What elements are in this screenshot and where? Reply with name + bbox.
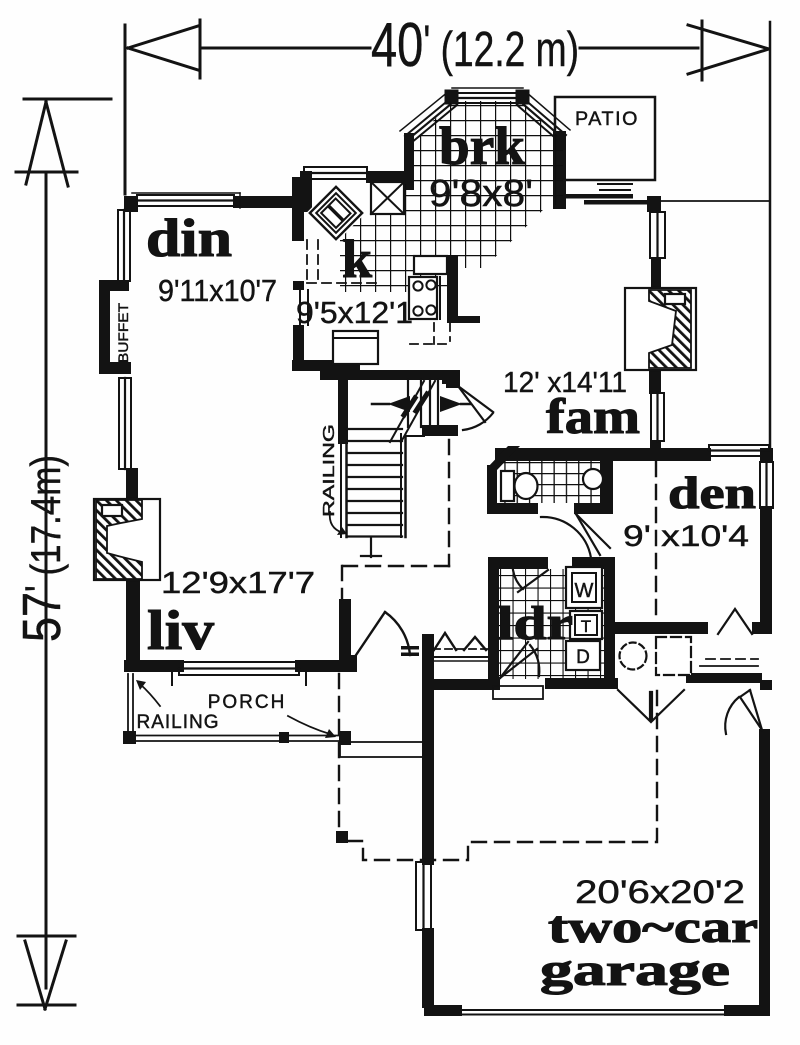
svg-text:PATIO: PATIO xyxy=(575,109,639,130)
svg-text:BUFFET: BUFFET xyxy=(115,303,131,363)
svg-text:9'8x8': 9'8x8' xyxy=(429,173,533,215)
svg-text:T: T xyxy=(581,617,591,636)
svg-text:fam: fam xyxy=(546,388,640,444)
svg-text:din: din xyxy=(146,208,232,268)
svg-text:PORCH: PORCH xyxy=(208,692,287,713)
svg-text:liv: liv xyxy=(147,600,214,662)
svg-text:9'11x10'7: 9'11x10'7 xyxy=(158,273,277,308)
svg-text:9' x10'4: 9' x10'4 xyxy=(623,520,749,553)
svg-text:RAILING: RAILING xyxy=(321,424,338,517)
svg-text:W: W xyxy=(575,580,594,602)
svg-text:RAILING: RAILING xyxy=(136,712,219,733)
svg-text:k: k xyxy=(342,229,372,289)
svg-text:12'9x17'7: 12'9x17'7 xyxy=(161,565,315,600)
svg-text:D: D xyxy=(576,647,590,668)
svg-text:den: den xyxy=(668,467,756,518)
svg-text:brk: brk xyxy=(439,116,525,176)
svg-text:9'5x12'1: 9'5x12'1 xyxy=(296,295,413,330)
svg-text:garage: garage xyxy=(540,944,730,995)
svg-text:ldr: ldr xyxy=(497,597,573,650)
